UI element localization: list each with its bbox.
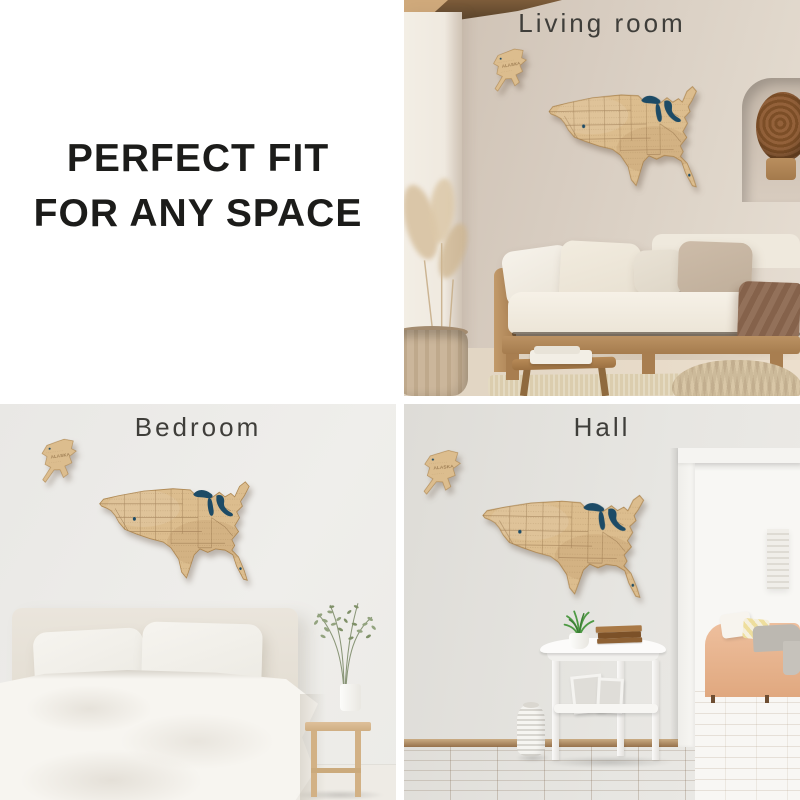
headline-line-1: PERFECT FIT [67, 132, 329, 187]
scene-title-bedroom: Bedroom [0, 412, 396, 443]
scene-title-hall: Hall [404, 412, 800, 443]
sofa-leg [765, 695, 769, 703]
planter-pot [404, 330, 468, 396]
alaska-map-wall-art [483, 38, 542, 104]
alaska-map-wall-art [415, 442, 474, 506]
scene-living-room: Living room [404, 0, 800, 396]
wooden-bench [305, 722, 371, 731]
usa-map-wall-art [471, 486, 649, 603]
bed-duvet [0, 670, 318, 800]
bench-leg [311, 731, 317, 797]
headline-panel: PERFECT FIT FOR ANY SPACE [0, 0, 396, 396]
book-stack [596, 625, 643, 647]
console-shelf [554, 704, 658, 713]
door-lintel [678, 448, 800, 463]
bench-shadow [296, 790, 384, 800]
product-collage: PERFECT FIT FOR ANY SPACE [0, 0, 800, 800]
doorway-inner-shadow [695, 463, 800, 471]
sofa-leg [642, 352, 655, 374]
book [597, 637, 642, 644]
usa-map-wall-art [539, 81, 703, 196]
wall-art [767, 529, 789, 589]
gray-throw-drape [783, 641, 800, 675]
eucalyptus-plant [298, 598, 390, 694]
headline-line-2: FOR ANY SPACE [34, 187, 363, 242]
stool-cloth-fold [534, 346, 580, 354]
room-wood-floor [695, 691, 800, 800]
adjacent-room-view [695, 463, 800, 800]
scene-title-living-room: Living room [404, 8, 800, 39]
sofa-leg [711, 695, 715, 703]
plant-pot-white [569, 633, 589, 649]
bench-rail [311, 768, 361, 773]
scene-bedroom: Bedroom [0, 404, 396, 800]
plant-pot-white [340, 684, 361, 711]
textured-floor-vase [517, 704, 545, 756]
basket-stand [766, 158, 796, 180]
console-apron [547, 652, 659, 661]
scene-hall: Hall [404, 404, 800, 800]
vase-mouth [523, 702, 539, 708]
bench-leg [355, 731, 361, 797]
door-jamb [678, 448, 695, 747]
usa-map-wall-art [90, 476, 254, 586]
